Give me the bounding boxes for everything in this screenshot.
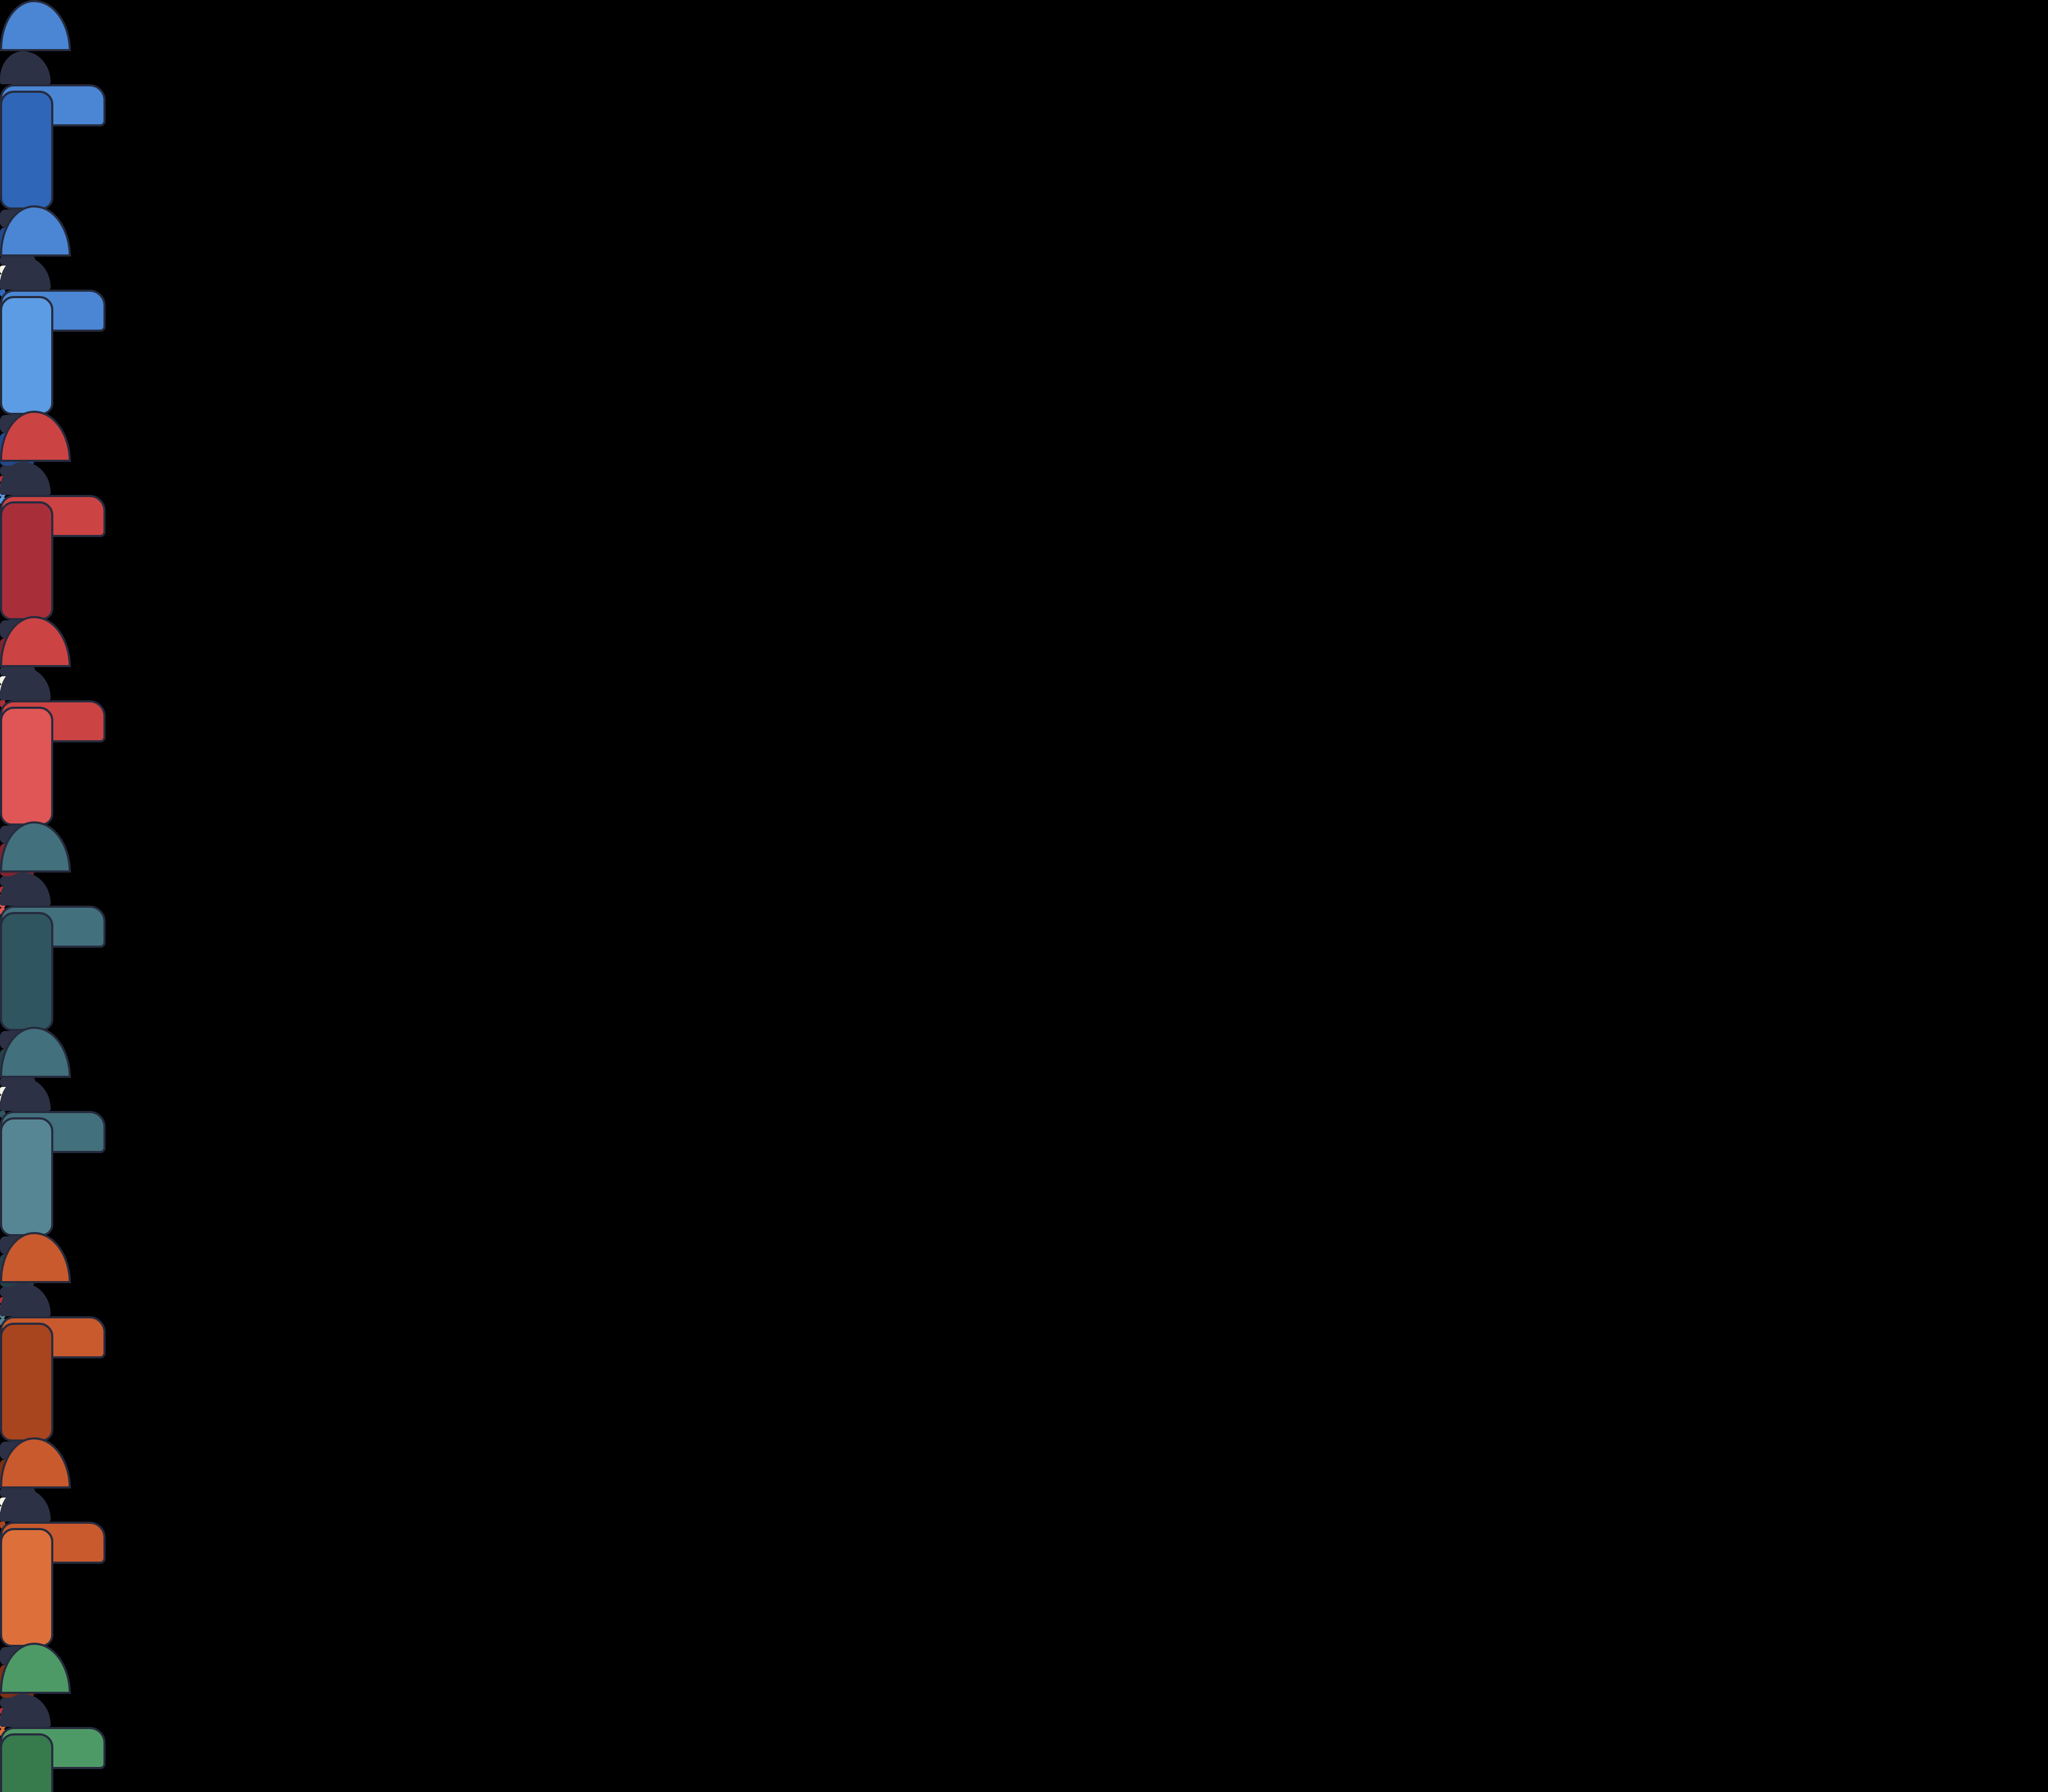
- body: [0, 1117, 53, 1236]
- car-top-view: [0, 1733, 49, 1792]
- car-top-view: [0, 501, 49, 616]
- car-top-view: [0, 912, 49, 1027]
- compact-car-side: [0, 205, 101, 296]
- window: [0, 873, 51, 905]
- cabin: [0, 1232, 71, 1283]
- body: [0, 1733, 53, 1792]
- cabin: [0, 1437, 71, 1489]
- compact-car-side: [0, 1643, 101, 1733]
- sprite-sheet-canvas: ↓H73077359591407140 1 2 34 5 6 78 9CAR W…: [0, 0, 2048, 1792]
- car-top-view: [0, 1528, 49, 1643]
- cabin: [0, 1643, 71, 1694]
- window: [0, 1489, 51, 1521]
- cabin: [0, 0, 71, 51]
- window: [0, 462, 51, 494]
- cabin: [0, 821, 71, 873]
- window: [0, 1078, 51, 1110]
- car-top-view: [0, 296, 49, 411]
- cabin: [0, 411, 71, 462]
- car-top-view: [0, 707, 49, 821]
- compact-car-side: [0, 1027, 101, 1117]
- cabin: [0, 205, 71, 257]
- body: [0, 91, 53, 210]
- body: [0, 707, 53, 826]
- body: [0, 1528, 53, 1647]
- compact-car-side: [0, 616, 101, 707]
- body: [0, 912, 53, 1031]
- compact-car-side: [0, 1232, 101, 1323]
- car-top-view: [0, 1323, 49, 1437]
- body: [0, 501, 53, 620]
- compact-car-side: [0, 1437, 101, 1528]
- window: [0, 667, 51, 700]
- compact-car-side: [0, 411, 101, 501]
- compact-car-side: [0, 0, 101, 91]
- window: [0, 1283, 51, 1316]
- body: [0, 1323, 53, 1442]
- car-top-view: [0, 1117, 49, 1232]
- car-top-view: [0, 91, 49, 205]
- cabin: [0, 616, 71, 667]
- compact-car-side: [0, 821, 101, 912]
- window: [0, 1694, 51, 1726]
- body: [0, 296, 53, 415]
- window: [0, 51, 51, 84]
- window: [0, 257, 51, 289]
- cabin: [0, 1027, 71, 1078]
